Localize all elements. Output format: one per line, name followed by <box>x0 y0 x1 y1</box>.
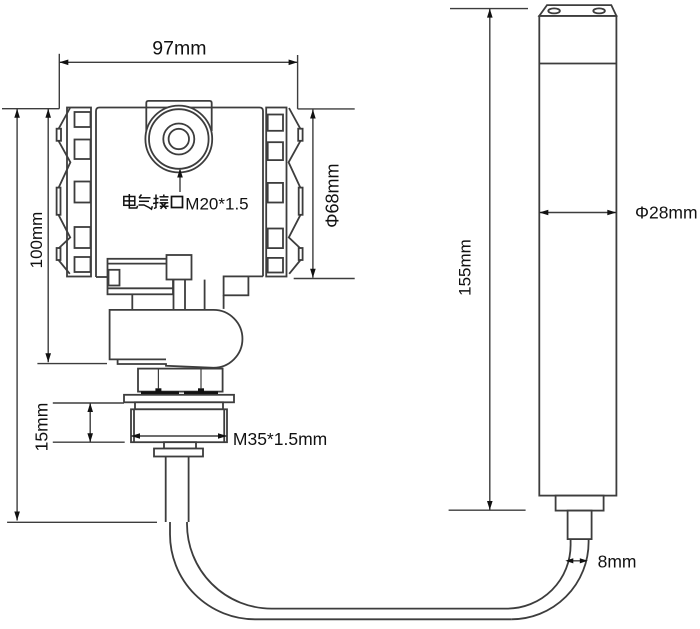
svg-text:8mm: 8mm <box>598 552 637 572</box>
svg-text:97mm: 97mm <box>152 37 206 59</box>
svg-text:M35*1.5mm: M35*1.5mm <box>233 429 327 449</box>
svg-text:15mm: 15mm <box>32 403 52 452</box>
svg-text:100mm: 100mm <box>27 212 46 269</box>
svg-text:M20*1.5: M20*1.5 <box>185 194 248 213</box>
svg-text:Φ68mm: Φ68mm <box>323 164 343 228</box>
svg-text:155mm: 155mm <box>455 239 474 296</box>
svg-text:Φ28mm: Φ28mm <box>635 203 698 223</box>
